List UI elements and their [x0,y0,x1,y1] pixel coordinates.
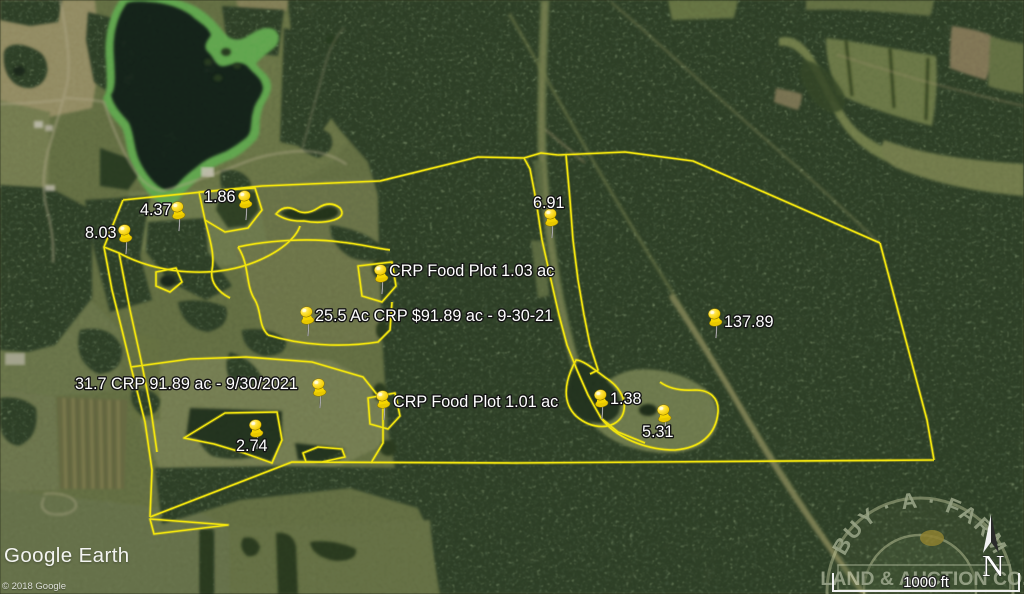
svg-text:2.74: 2.74 [236,437,268,455]
svg-text:25.5 Ac CRP $91.89 ac - 9-30-2: 25.5 Ac CRP $91.89 ac - 9-30-21 [315,307,553,325]
svg-text:1.86: 1.86 [204,188,236,206]
svg-text:1.38: 1.38 [610,390,642,408]
svg-text:© 2018 Google: © 2018 Google [2,581,66,592]
svg-text:CRP Food Plot 1.01 ac: CRP Food Plot 1.01 ac [393,393,558,411]
svg-text:N: N [982,548,1004,583]
svg-text:31.7 CRP 91.89 ac - 9/30/2021: 31.7 CRP 91.89 ac - 9/30/2021 [75,375,298,393]
svg-text:Google Earth: Google Earth [4,544,130,567]
svg-text:6.91: 6.91 [533,194,565,212]
svg-text:5.31: 5.31 [642,423,674,441]
svg-text:137.89: 137.89 [724,313,774,331]
svg-text:4.37: 4.37 [140,201,172,219]
svg-text:CRP Food Plot 1.03 ac: CRP Food Plot 1.03 ac [389,262,554,280]
svg-text:1000 ft: 1000 ft [903,574,950,591]
svg-text:8.03: 8.03 [85,224,117,242]
